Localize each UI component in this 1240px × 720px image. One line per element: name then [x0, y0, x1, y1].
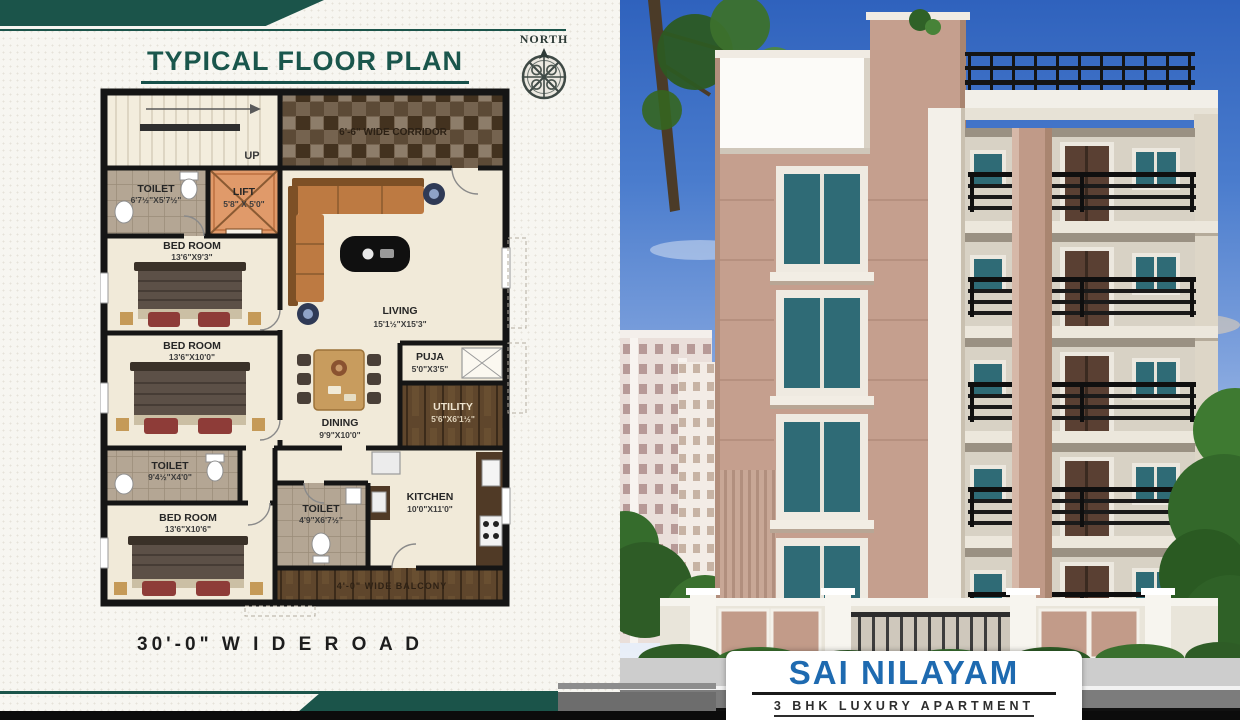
living-name: LIVING [382, 305, 417, 317]
balcony-floor-3 [928, 338, 1218, 446]
bed-3 [114, 536, 263, 596]
living-dims: 15'1½"X15'3" [373, 319, 426, 329]
bed-2 [116, 362, 265, 434]
rooftop-railing [928, 52, 1218, 120]
brand-name: SAI NILAYAM [726, 656, 1082, 691]
corner-white-band [928, 108, 964, 655]
toilet-low-name: TOILET [302, 503, 340, 515]
bottom-accent-line [0, 691, 558, 694]
dining-set [297, 350, 381, 410]
utility-dims: 5'6"X6'1½" [431, 414, 475, 424]
top-banner-decoration [0, 0, 324, 26]
puja-platform [462, 348, 502, 378]
floor-plan: UP [100, 86, 530, 620]
toilet-mid-name: TOILET [151, 460, 189, 472]
puja-name: PUJA [416, 351, 444, 363]
dining-dims: 9'9"X10'0" [319, 430, 360, 440]
brand-logo-card: SAI NILAYAM 3 BHK LUXURY APARTMENT [726, 651, 1082, 720]
brand-rule [752, 692, 1056, 695]
corner-band-shadow [961, 108, 965, 655]
bedroom-2-dims: 13'6"X10'0" [169, 352, 215, 362]
corridor-label: 6'-6" WIDE CORRIDOR [339, 127, 447, 138]
kitchen-name: KITCHEN [407, 491, 454, 503]
balcony-floor-1 [928, 128, 1218, 236]
stairs-up-label: UP [244, 150, 259, 162]
bedroom-3-dims: 13'6"X10'6" [165, 524, 211, 534]
puja-dims: 5'0"X3'5" [412, 364, 449, 374]
floor-plan-panel: TYPICAL FLOOR PLAN NORTH [0, 0, 620, 720]
bedroom-2-name: BED ROOM [163, 340, 221, 352]
road-label: 30'-0" W I D E R O A D [0, 634, 560, 656]
bottom-gray-bar [558, 692, 716, 712]
bedroom-3-name: BED ROOM [159, 512, 217, 524]
lift-dims: 5'8" X 5'0" [223, 199, 264, 209]
bottom-teal-wedge [298, 694, 558, 712]
utility-name: UTILITY [433, 401, 473, 413]
brand-tagline: 3 BHK LUXURY APARTMENT [774, 699, 1034, 717]
brochure-page: TYPICAL FLOOR PLAN NORTH [0, 0, 1240, 720]
building-render [620, 0, 1240, 720]
balcony-label: 4'-0" WIDE BALCONY [337, 581, 447, 591]
bedroom-1-name: BED ROOM [163, 240, 221, 252]
toilet-mid-dims: 9'4½"X4'0" [148, 472, 192, 482]
building-render-panel [620, 0, 1240, 720]
bedroom-1-dims: 13'6"X9'3" [171, 252, 212, 262]
dining-name: DINING [322, 417, 359, 429]
lift-name: LIFT [233, 186, 256, 198]
kitchen-dims: 10'0"X11'0" [407, 504, 453, 514]
bottom-gray-bar-thin [558, 683, 716, 689]
toilet-top-name: TOILET [137, 183, 175, 195]
bed-1 [120, 262, 261, 327]
toilet-low-dims: 4'9"X6'7½" [299, 515, 343, 525]
toilet-top-dims: 6'7½"X5'7½" [131, 195, 182, 205]
balcony-column [1012, 128, 1052, 655]
page-title: TYPICAL FLOOR PLAN [141, 46, 469, 84]
north-label: NORTH [512, 32, 576, 47]
top-banner-line [0, 29, 566, 31]
balcony-floor-2 [928, 233, 1218, 341]
